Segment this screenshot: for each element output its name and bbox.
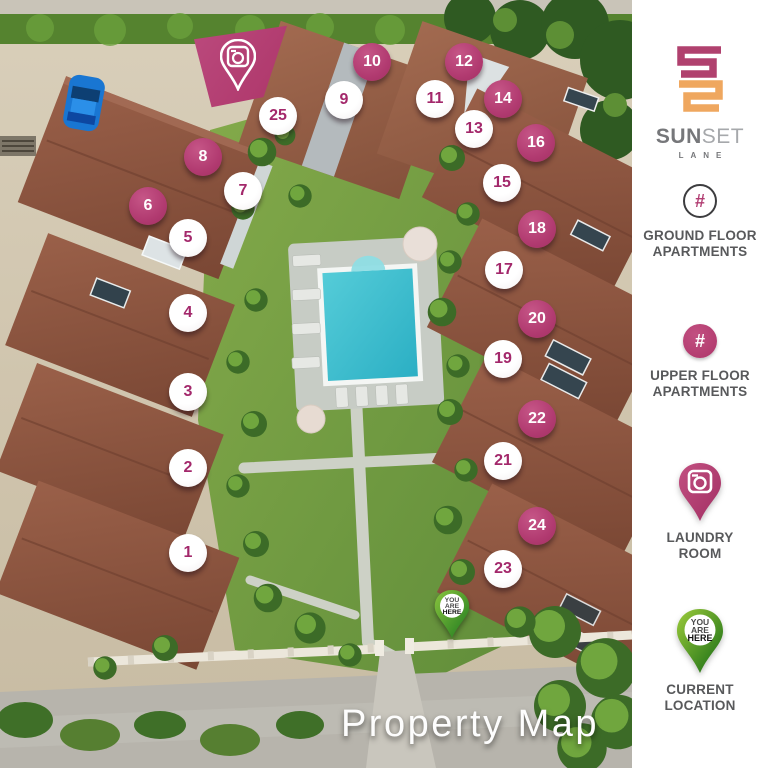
upper-floor-number-icon: #: [683, 324, 717, 358]
map-marker-12: 12: [445, 43, 483, 81]
map-marker-23: 23: [484, 550, 522, 588]
current-location-label: CURRENT LOCATION: [632, 682, 768, 714]
upper-floor-label: UPPER FLOOR APARTMENTS: [632, 368, 768, 400]
map-marker-13: 13: [455, 110, 493, 148]
laundry-pin-icon: [220, 39, 256, 91]
legend-laundry-room: LAUNDRY ROOM: [632, 462, 768, 562]
map-marker-7: 7: [224, 172, 262, 210]
map-marker-25: 25: [259, 97, 297, 135]
brand-subtitle: LANE: [632, 151, 768, 160]
ground-floor-number-icon: #: [683, 184, 717, 218]
laundry-room-label: LAUNDRY ROOM: [632, 530, 768, 562]
map-marker-11: 11: [416, 80, 454, 118]
map-marker-3: 3: [169, 373, 207, 411]
map-marker-24: 24: [518, 507, 556, 545]
map-marker-6: 6: [129, 187, 167, 225]
legend-ground-floor: # GROUND FLOOR APARTMENTS: [632, 184, 768, 260]
map-marker-10: 10: [353, 43, 391, 81]
aerial-photo: YOU ARE HERE 123456789101112131415161718…: [0, 0, 632, 768]
laundry-room-pin-icon: [678, 462, 722, 522]
map-marker-18: 18: [518, 210, 556, 248]
brand-logo: SUNSET LANE: [632, 42, 768, 160]
map-caption: Property Map: [330, 703, 610, 746]
map-marker-9: 9: [325, 81, 363, 119]
map-marker-4: 4: [169, 294, 207, 332]
legend-current-location: YOU ARE HERE CURRENT LOCATION: [632, 608, 768, 714]
ground-floor-label: GROUND FLOOR APARTMENTS: [632, 228, 768, 260]
map-marker-14: 14: [484, 80, 522, 118]
map-marker-17: 17: [485, 251, 523, 289]
map-marker-2: 2: [169, 449, 207, 487]
sunset-logo-mark: [670, 42, 730, 116]
map-marker-20: 20: [518, 300, 556, 338]
map-marker-22: 22: [518, 400, 556, 438]
map-marker-15: 15: [483, 164, 521, 202]
aerial-scene-graphic: [0, 0, 632, 768]
legend-sidebar: SUNSET LANE # GROUND FLOOR APARTMENTS # …: [632, 0, 768, 768]
svg-text:HERE: HERE: [443, 609, 462, 616]
map-marker-19: 19: [484, 340, 522, 378]
you-are-here-map-pin: YOU ARE HERE: [434, 588, 470, 640]
map-marker-21: 21: [484, 442, 522, 480]
map-marker-1: 1: [169, 534, 207, 572]
map-marker-8: 8: [184, 138, 222, 176]
property-map-screenshot: YOU ARE HERE 123456789101112131415161718…: [0, 0, 768, 768]
legend-upper-floor: # UPPER FLOOR APARTMENTS: [632, 324, 768, 400]
current-location-pin-icon: YOU ARE HERE: [676, 608, 724, 674]
brand-wordmark: SUNSET: [632, 125, 768, 149]
map-marker-5: 5: [169, 219, 207, 257]
map-marker-16: 16: [517, 124, 555, 162]
svg-text:HERE: HERE: [687, 633, 712, 643]
